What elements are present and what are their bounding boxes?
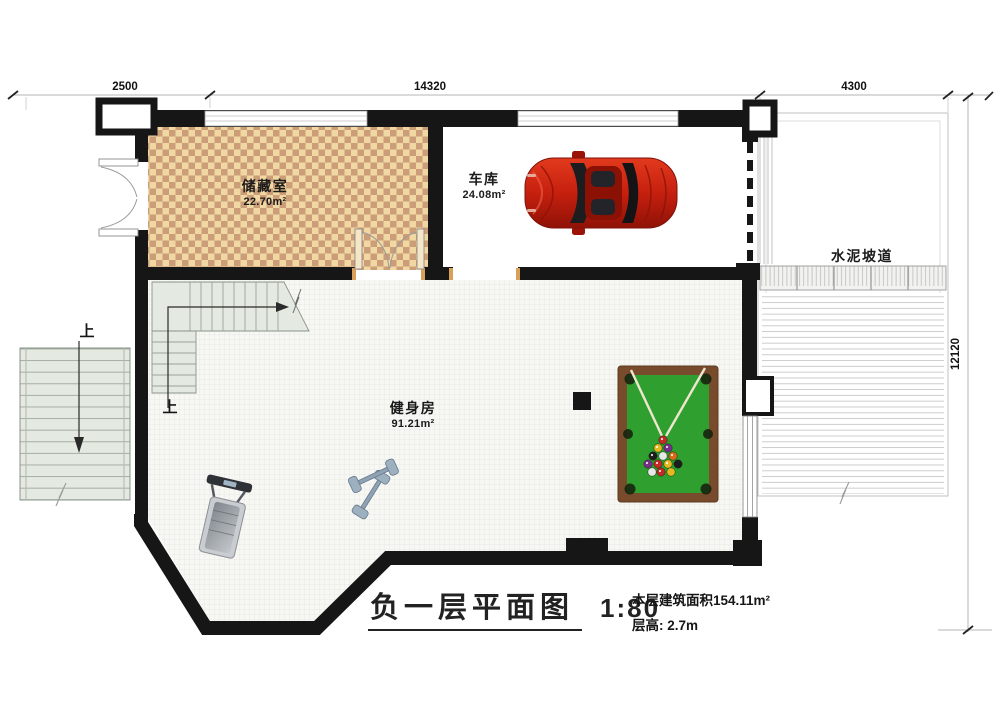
floor-plan-canvas: 2500 14320 4300 12120 储藏室 22.70m² 车库 24.… xyxy=(0,0,1000,706)
cement-ramp xyxy=(758,113,948,504)
note-floor-height: 层高: 2.7m xyxy=(632,614,770,639)
storage-room-area: 22.70m² xyxy=(242,196,289,208)
ramp-label: 水泥坡道 xyxy=(831,246,893,266)
notes-block: 本层建筑面积154.11m² 层高: 2.7m xyxy=(632,589,770,639)
gym xyxy=(135,280,772,628)
gym-label: 健身房 91.21m² xyxy=(390,398,437,430)
gym-area: 91.21m² xyxy=(390,418,437,430)
dimension-top-middle: 14320 xyxy=(414,81,446,93)
exterior-stairs-up-label: 上 xyxy=(79,320,94,341)
dimension-top-right: 4300 xyxy=(841,81,867,93)
ramp-fence-band xyxy=(760,266,946,290)
chimney-corner-right xyxy=(746,103,774,134)
garage-window-top xyxy=(518,111,678,126)
column xyxy=(573,392,591,410)
pool-table xyxy=(618,366,718,502)
chimney-corner xyxy=(99,101,154,132)
gym-name: 健身房 xyxy=(390,398,437,418)
storage-room-label: 储藏室 22.70m² xyxy=(242,176,289,208)
exterior-stairs xyxy=(20,341,130,506)
garage-label: 车库 24.08m² xyxy=(462,169,505,201)
ramp-surface xyxy=(762,293,944,494)
storage-room-name: 储藏室 xyxy=(242,176,289,196)
storage-window-top xyxy=(205,111,367,126)
dimension-right: 12120 xyxy=(950,338,962,370)
garage-name: 车库 xyxy=(462,169,505,189)
interior-stairs-up-label: 上 xyxy=(162,396,177,417)
title-block: 负一层平面图 1:80 xyxy=(368,584,660,631)
note-floor-area: 本层建筑面积154.11m² xyxy=(632,589,770,614)
storage-left-door xyxy=(99,159,138,236)
dimension-top-left: 2500 xyxy=(112,81,138,93)
garage-area: 24.08m² xyxy=(462,189,505,201)
page-title: 负一层平面图 xyxy=(368,584,582,631)
car xyxy=(525,151,677,235)
